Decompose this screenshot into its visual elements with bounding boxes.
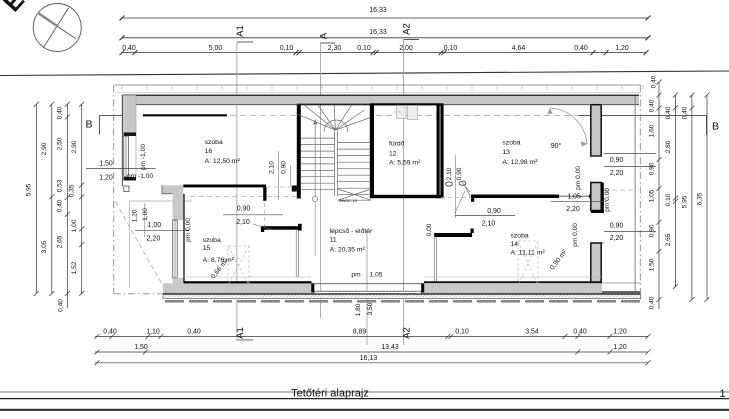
svg-text:13: 13: [502, 149, 510, 156]
svg-text:0,40: 0,40: [573, 328, 587, 335]
svg-text:0,10: 0,10: [665, 193, 672, 206]
svg-text:szoba: szoba: [205, 139, 223, 146]
svg-text:2,65: 2,65: [57, 235, 64, 248]
svg-text:A: 12,98 m²: A: 12,98 m²: [502, 159, 538, 166]
svg-text:3,54: 3,54: [525, 328, 539, 335]
svg-text:pm: pm: [351, 272, 361, 279]
svg-text:5,95: 5,95: [682, 195, 689, 208]
svg-text:4,64: 4,64: [512, 45, 526, 52]
svg-text:AWGC 10: AWGC 10: [339, 198, 358, 203]
svg-text:16,13: 16,13: [360, 355, 378, 362]
svg-text:15: 15: [203, 245, 211, 252]
svg-text:90°: 90°: [551, 142, 562, 150]
svg-text:A: 12,50 m²: A: 12,50 m²: [205, 158, 241, 165]
svg-text:3,05: 3,05: [41, 240, 48, 253]
svg-text:12: 12: [389, 150, 397, 157]
svg-text:0,40: 0,40: [58, 299, 65, 312]
svg-text:5,00: 5,00: [209, 45, 223, 52]
svg-text:1,20: 1,20: [613, 328, 627, 335]
svg-text:2,20: 2,20: [566, 206, 580, 213]
svg-text:0,40: 0,40: [187, 328, 201, 335]
svg-text:14: 14: [511, 241, 519, 248]
svg-text:2,10: 2,10: [482, 221, 496, 228]
svg-text:0,10: 0,10: [357, 45, 371, 52]
svg-text:1,20: 1,20: [615, 45, 629, 52]
svg-text:2,20: 2,20: [610, 170, 624, 177]
svg-text:0,10: 0,10: [455, 328, 469, 335]
svg-text:2,65: 2,65: [665, 233, 672, 246]
svg-text:0,10: 0,10: [444, 45, 458, 52]
svg-text:pm 0,00: pm 0,00: [575, 166, 582, 190]
svg-text:0,90: 0,90: [281, 161, 288, 174]
svg-text:2,10: 2,10: [269, 161, 276, 174]
svg-text:0,40: 0,40: [665, 106, 672, 119]
svg-text:A: 8,76 m²: A: 8,76 m²: [203, 257, 235, 264]
svg-text:0,40: 0,40: [682, 106, 689, 119]
svg-text:2,90: 2,90: [41, 142, 48, 155]
svg-text:1,00: 1,00: [71, 219, 78, 232]
svg-text:0,90: 0,90: [487, 208, 501, 215]
svg-text:1,05: 1,05: [567, 194, 581, 201]
svg-text:0,40: 0,40: [574, 45, 588, 52]
svg-text:1,05: 1,05: [370, 272, 383, 279]
svg-text:2,80: 2,80: [665, 140, 672, 153]
svg-text:pm 0,00: pm 0,00: [185, 218, 192, 242]
svg-text:0,90: 0,90: [610, 222, 624, 229]
svg-text:lépcső - előtér: lépcső - előtér: [330, 228, 373, 235]
svg-text:2,50: 2,50: [57, 137, 64, 150]
svg-text:0,90: 0,90: [610, 157, 624, 164]
svg-text:11: 11: [330, 236, 337, 243]
svg-text:1,50: 1,50: [134, 344, 148, 351]
svg-text:B: B: [712, 121, 719, 133]
svg-text:0,10: 0,10: [280, 45, 294, 52]
svg-text:1: 1: [719, 388, 725, 400]
svg-text:8,89: 8,89: [353, 328, 367, 335]
svg-text:0,40: 0,40: [649, 99, 656, 112]
svg-text:0,90: 0,90: [456, 167, 463, 180]
svg-text:B: B: [85, 119, 92, 131]
svg-text:Tetőtéri alaprajz: Tetőtéri alaprajz: [291, 388, 369, 400]
svg-text:0,90: 0,90: [237, 205, 251, 212]
svg-text:1,00: 1,00: [148, 222, 162, 229]
svg-text:0,90: 0,90: [649, 162, 656, 175]
svg-text:pm 0,00: pm 0,00: [572, 223, 579, 247]
svg-text:1,50: 1,50: [99, 160, 113, 167]
svg-text:1,50: 1,50: [649, 258, 656, 271]
svg-text:2,10: 2,10: [446, 167, 453, 180]
svg-text:1,20: 1,20: [613, 344, 627, 351]
svg-text:16: 16: [205, 148, 213, 155]
svg-text:1,00: 1,00: [142, 208, 149, 221]
svg-text:A1: A1: [235, 327, 246, 339]
svg-text:2,90: 2,90: [71, 140, 78, 153]
svg-text:fürdő: fürdő: [389, 141, 405, 148]
svg-text:pm -1,00: pm -1,00: [127, 173, 153, 180]
svg-text:1,60: 1,60: [649, 124, 656, 137]
svg-text:A: 5,59 m²: A: 5,59 m²: [389, 160, 421, 167]
svg-text:6,35: 6,35: [697, 192, 704, 205]
svg-text:A2: A2: [402, 327, 413, 339]
svg-text:szoba: szoba: [203, 237, 221, 244]
svg-text:0,40: 0,40: [122, 45, 136, 52]
svg-text:szoba: szoba: [502, 140, 520, 147]
svg-text:0,35: 0,35: [69, 184, 76, 197]
svg-text:pm 0,00: pm 0,00: [604, 188, 611, 212]
svg-text:16,33: 16,33: [369, 29, 387, 36]
svg-text:A1: A1: [235, 25, 246, 37]
svg-text:13,43: 13,43: [381, 344, 399, 351]
svg-text:1,10: 1,10: [146, 328, 160, 335]
svg-text:0,00: 0,00: [426, 223, 433, 236]
svg-text:5,95: 5,95: [26, 183, 33, 196]
svg-text:2,30: 2,30: [328, 45, 342, 52]
svg-text:3,50: 3,50: [367, 302, 374, 315]
svg-text:A: 11,11 m²: A: 11,11 m²: [511, 250, 546, 257]
svg-text:1,05: 1,05: [649, 189, 656, 202]
svg-text:2,10: 2,10: [236, 219, 250, 226]
svg-text:16,33: 16,33: [369, 7, 387, 14]
svg-text:0,40: 0,40: [57, 199, 64, 212]
svg-text:1,20: 1,20: [99, 174, 113, 181]
svg-text:szoba: szoba: [511, 232, 529, 239]
svg-text:A: A: [319, 32, 330, 39]
svg-text:1,20: 1,20: [132, 209, 139, 222]
svg-text:0,40: 0,40: [651, 75, 658, 88]
svg-text:A: 20,35 m²: A: 20,35 m²: [330, 247, 366, 254]
svg-text:2,20: 2,20: [147, 235, 161, 242]
svg-text:0,53: 0,53: [57, 179, 64, 192]
svg-text:A2: A2: [402, 23, 413, 35]
svg-text:pm -1,00: pm -1,00: [140, 144, 147, 170]
svg-text:1,80: 1,80: [355, 303, 362, 316]
svg-text:0,40: 0,40: [57, 106, 64, 119]
svg-text:0,40: 0,40: [103, 328, 117, 335]
svg-text:0,40: 0,40: [649, 296, 656, 309]
svg-text:2,20: 2,20: [610, 235, 624, 242]
svg-text:0,90: 0,90: [649, 224, 656, 237]
svg-text:2,00: 2,00: [399, 45, 413, 52]
svg-text:1,52: 1,52: [71, 261, 78, 274]
